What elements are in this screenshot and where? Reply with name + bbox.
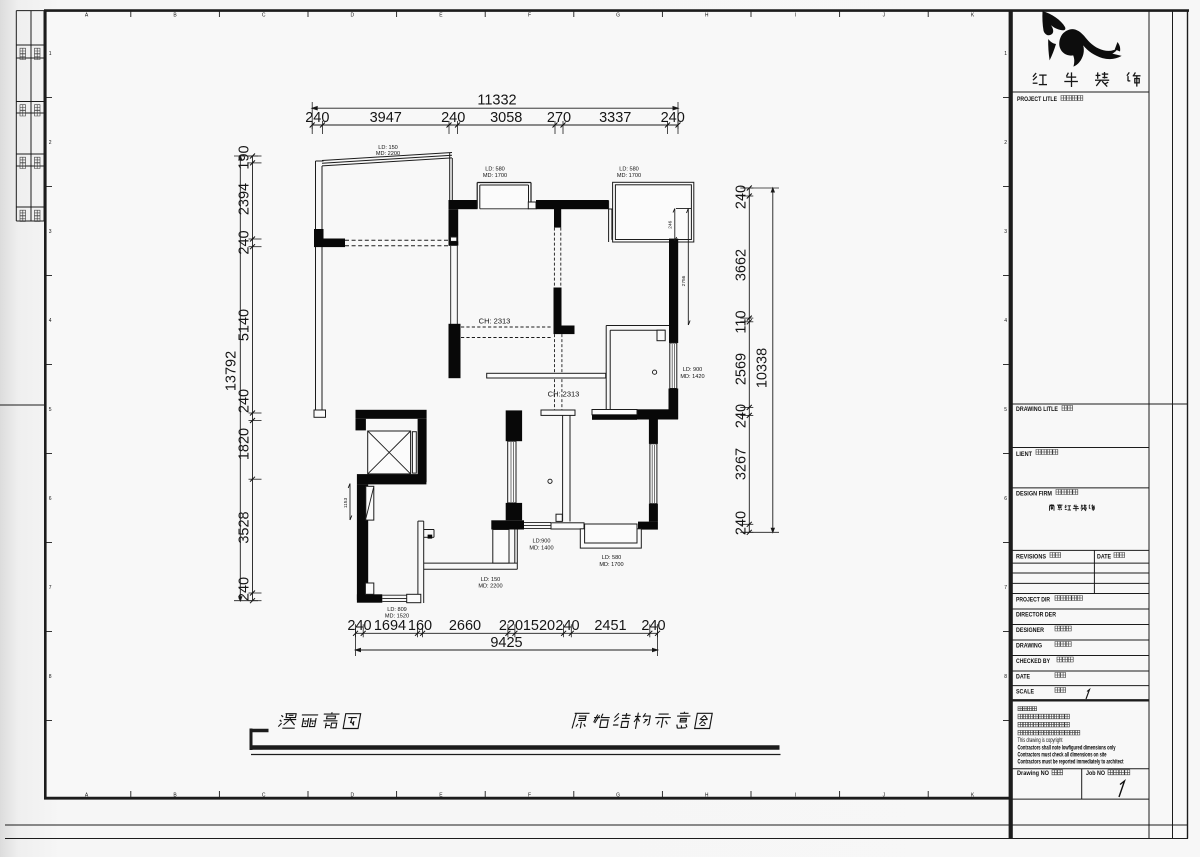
svg-text:2569: 2569	[733, 353, 749, 385]
svg-text:MD: 1700: MD: 1700	[599, 562, 623, 568]
svg-text:8: 8	[49, 674, 52, 680]
svg-text:240: 240	[733, 404, 749, 428]
svg-text:F: F	[528, 13, 531, 19]
svg-text:4: 4	[49, 318, 52, 324]
svg-text:1153: 1153	[343, 498, 349, 509]
svg-text:LD: 580: LD: 580	[619, 167, 639, 173]
svg-text:1694: 1694	[374, 618, 406, 634]
svg-text:110: 110	[733, 310, 749, 333]
svg-text:MD: 1700: MD: 1700	[617, 173, 641, 179]
svg-text:2660: 2660	[449, 618, 481, 634]
svg-text:D: D	[350, 793, 354, 799]
svg-text:CHECKED BY: CHECKED BY	[1016, 659, 1050, 665]
svg-text:240: 240	[305, 110, 329, 126]
svg-text:Contractors must check all dim: Contractors must check all dimensions on…	[1018, 751, 1107, 758]
svg-text:13792: 13792	[224, 351, 240, 391]
svg-text:4: 4	[1004, 318, 1007, 324]
svg-text:2451: 2451	[594, 618, 626, 634]
svg-text:PROJECT DIR: PROJECT DIR	[1016, 598, 1051, 604]
svg-text:270: 270	[547, 110, 571, 126]
svg-text:9425: 9425	[490, 635, 522, 651]
svg-text:11332: 11332	[477, 93, 516, 109]
svg-text:240: 240	[555, 618, 579, 634]
svg-text:DRAWING LITLE: DRAWING LITLE	[1016, 407, 1058, 413]
svg-text:1520: 1520	[523, 618, 555, 634]
svg-text:CH: 2313: CH: 2313	[479, 317, 511, 326]
svg-text:240: 240	[661, 110, 685, 126]
svg-text:240: 240	[237, 389, 253, 413]
svg-text:DRAWING: DRAWING	[1016, 644, 1042, 650]
svg-text:220: 220	[499, 618, 523, 634]
svg-text:2394: 2394	[237, 183, 253, 215]
svg-text:1: 1	[1004, 51, 1007, 57]
svg-text:6: 6	[1004, 496, 1007, 502]
svg-text:LD: 150: LD: 150	[378, 145, 398, 151]
svg-text:REVISIONS: REVISIONS	[1016, 555, 1046, 561]
svg-text:3: 3	[1004, 229, 1007, 235]
svg-text:240: 240	[733, 185, 749, 209]
svg-text:I: I	[795, 13, 796, 19]
svg-text:H: H	[705, 13, 709, 19]
svg-text:C: C	[262, 13, 266, 19]
svg-text:H: H	[705, 793, 709, 799]
svg-text:1: 1	[49, 51, 52, 57]
svg-text:5140: 5140	[237, 309, 253, 341]
svg-text:I: I	[795, 793, 796, 799]
svg-text:Contractors shall note lowfigu: Contractors shall note lowfigured dimens…	[1018, 744, 1116, 751]
svg-text:CH: 2313: CH: 2313	[548, 390, 580, 399]
svg-text:SCALE: SCALE	[1016, 690, 1034, 696]
svg-text:LD: 580: LD: 580	[602, 555, 622, 561]
svg-text:LD: 900: LD: 900	[683, 367, 703, 373]
svg-text:240: 240	[733, 511, 749, 535]
svg-text:LIENT: LIENT	[1016, 452, 1032, 458]
svg-text:7: 7	[49, 585, 52, 591]
svg-text:10338: 10338	[755, 348, 771, 388]
svg-text:LD: 150: LD: 150	[481, 577, 501, 583]
svg-text:2: 2	[1004, 140, 1007, 146]
svg-text:G: G	[616, 13, 620, 19]
svg-text:DESIGNER: DESIGNER	[1016, 628, 1045, 634]
svg-text:MD: 2200: MD: 2200	[478, 584, 502, 590]
svg-text:3058: 3058	[490, 110, 522, 126]
svg-text:3: 3	[49, 229, 52, 235]
svg-text:D: D	[350, 13, 354, 19]
svg-text:DIRECTOR DER: DIRECTOR DER	[1016, 613, 1057, 619]
svg-text:PROJECT LITLE: PROJECT LITLE	[1017, 97, 1057, 103]
svg-text:7: 7	[1004, 585, 1007, 591]
svg-text:5: 5	[1004, 407, 1007, 413]
svg-text:MD: 1700: MD: 1700	[483, 173, 507, 179]
svg-text:This drawing is copyright: This drawing is copyright	[1018, 738, 1063, 744]
svg-text:MD: 2200: MD: 2200	[376, 151, 400, 157]
svg-text:Job NO: Job NO	[1086, 771, 1105, 777]
svg-text:F: F	[528, 793, 531, 799]
svg-text:MD: 1420: MD: 1420	[680, 374, 704, 380]
svg-text:1820: 1820	[237, 428, 253, 460]
svg-text:5: 5	[49, 407, 52, 413]
svg-text:190: 190	[237, 145, 253, 169]
svg-text:LD: 809: LD: 809	[387, 607, 407, 613]
svg-text:Contractors must be reported i: Contractors must be reported immediately…	[1018, 759, 1125, 766]
svg-text:240: 240	[641, 618, 665, 634]
svg-text:160: 160	[408, 618, 432, 634]
svg-text:3267: 3267	[733, 448, 749, 480]
svg-text:3528: 3528	[237, 511, 253, 543]
svg-text:3662: 3662	[733, 249, 749, 281]
svg-text:240: 240	[237, 230, 253, 254]
svg-text:8: 8	[1004, 674, 1007, 680]
svg-text:LD:900: LD:900	[532, 539, 550, 545]
svg-text:MD: 1400: MD: 1400	[529, 545, 553, 551]
svg-text:3947: 3947	[370, 110, 402, 126]
svg-text:DESIGN FIRM: DESIGN FIRM	[1016, 492, 1052, 498]
svg-text:C: C	[262, 793, 266, 799]
svg-text:DATE: DATE	[1097, 555, 1111, 561]
svg-text:LD: 580: LD: 580	[485, 167, 505, 173]
svg-text:240: 240	[347, 618, 371, 634]
svg-text:2: 2	[49, 140, 52, 146]
svg-text:3337: 3337	[599, 110, 631, 126]
svg-text:6: 6	[49, 496, 52, 502]
svg-text:246: 246	[668, 220, 674, 228]
svg-text:DATE: DATE	[1016, 675, 1030, 681]
svg-text:Drawing NO: Drawing NO	[1017, 771, 1049, 777]
svg-text:240: 240	[441, 110, 465, 126]
svg-text:2756: 2756	[681, 275, 687, 286]
svg-text:G: G	[616, 793, 620, 799]
